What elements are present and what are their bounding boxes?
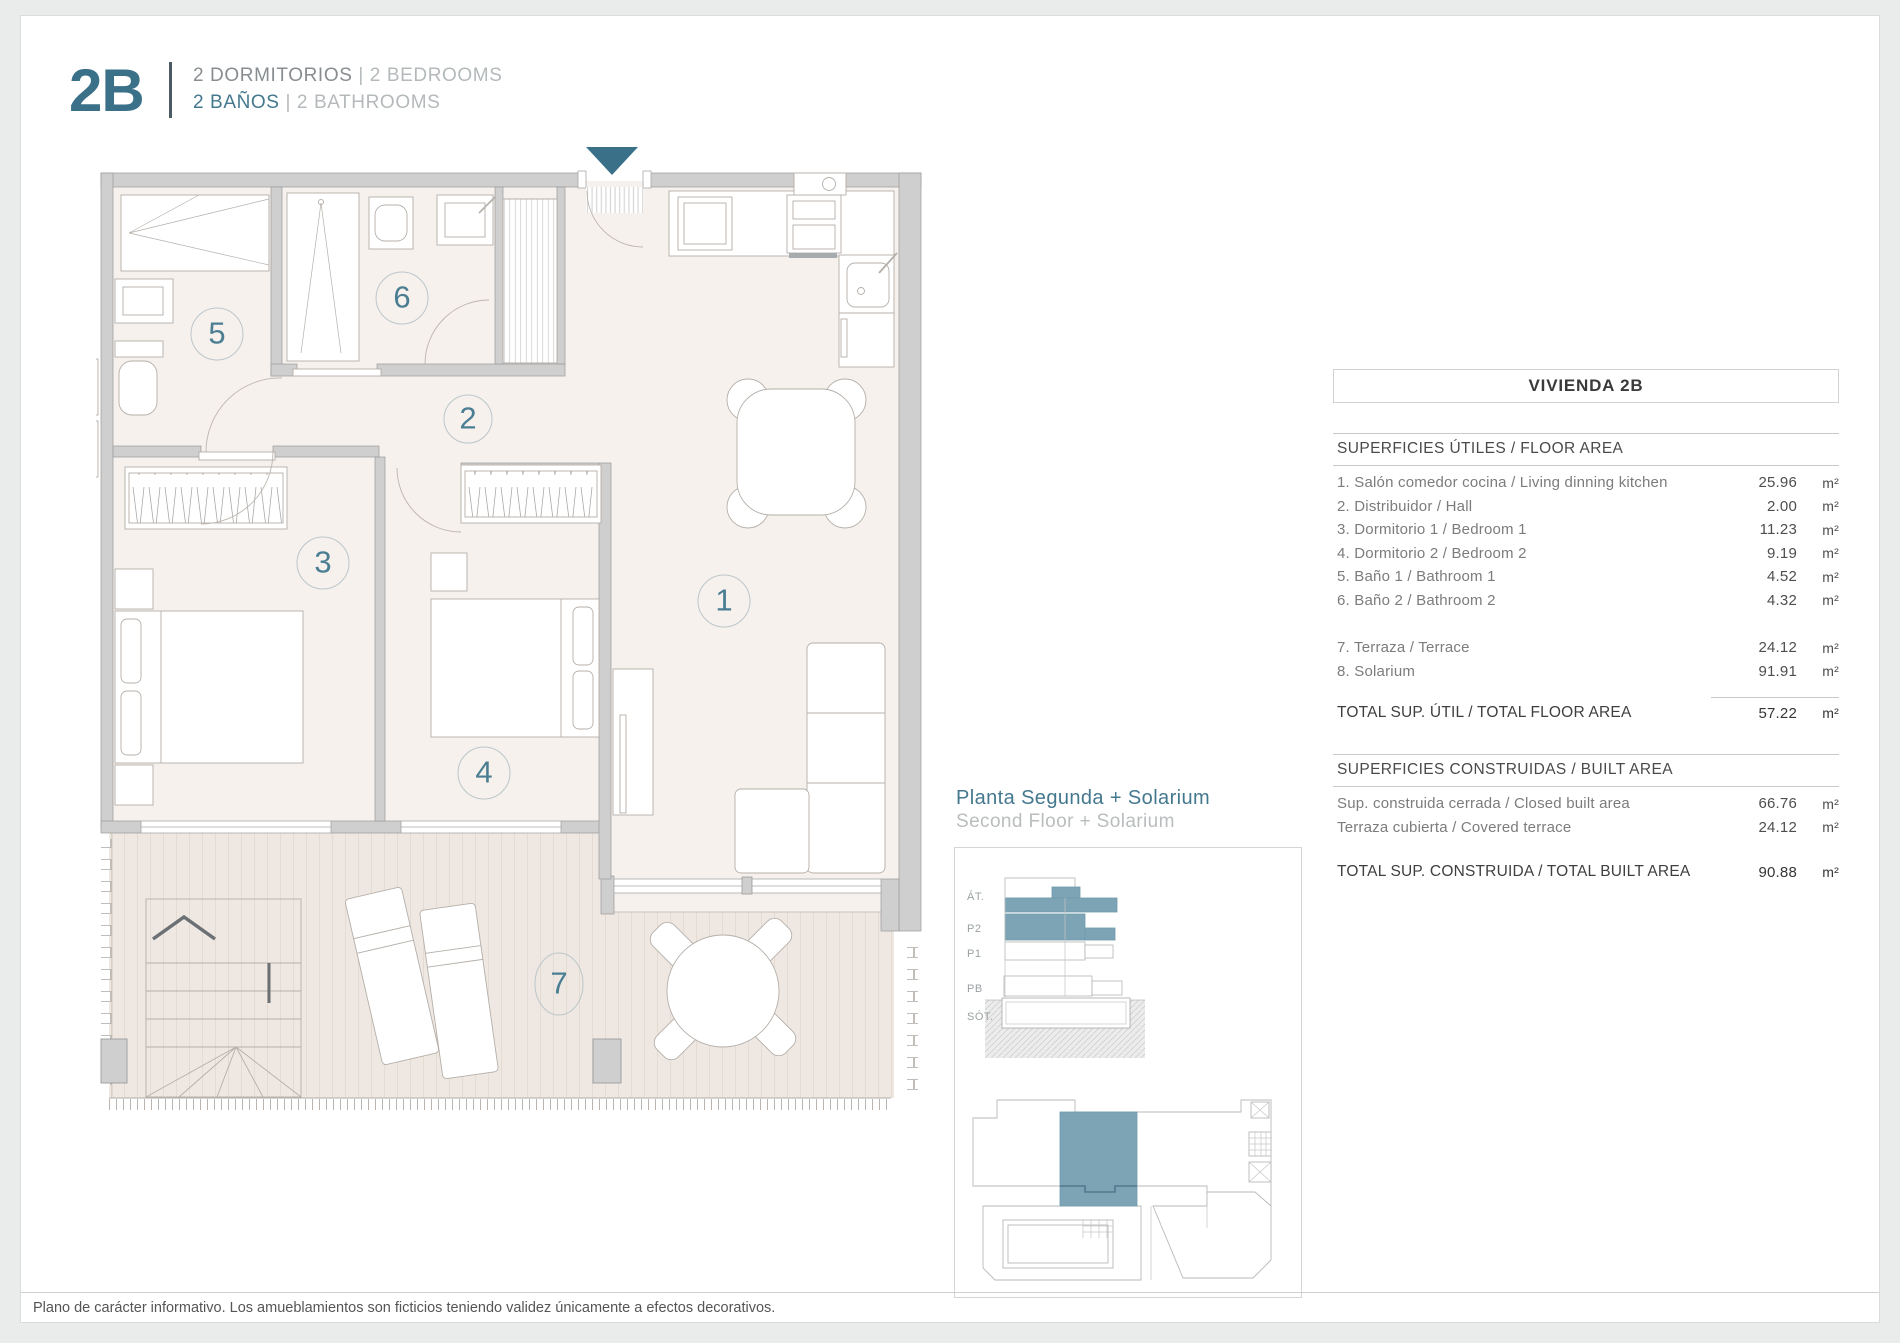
entrance-arrow-icon: [586, 147, 638, 175]
row-value: 4.52: [1733, 568, 1797, 585]
entry-closet: [503, 199, 557, 363]
floor-area-header: SUPERFICIES ÚTILES / FLOOR AREA: [1333, 433, 1839, 466]
row-unit: m²: [1797, 663, 1839, 679]
disclaimer-text: Plano de carácter informativo. Los amueb…: [33, 1300, 775, 1316]
sliding-door: [293, 369, 381, 376]
row-label: 4. Dormitorio 2 / Bedroom 2: [1333, 545, 1733, 562]
header-sep2: |: [285, 92, 291, 113]
bathrooms-en-label: 2 BATHROOMS: [297, 92, 441, 113]
bathrooms-es-label: 2 BAÑOS: [193, 92, 280, 113]
row-unit: m²: [1797, 705, 1839, 721]
header-divider: [169, 62, 172, 118]
floor-label-p1: P1: [967, 948, 1007, 960]
pillar: [101, 1039, 127, 1083]
room-label-living: 1: [715, 582, 732, 618]
table-row: 3. Dormitorio 1 / Bedroom 111.23m²: [1333, 518, 1839, 542]
row-unit: m²: [1797, 640, 1839, 656]
total-built-area-row: TOTAL SUP. CONSTRUIDA / TOTAL BUILT AREA…: [1333, 857, 1839, 887]
row-unit: m²: [1797, 819, 1839, 835]
sliding-door: [199, 452, 275, 460]
legend-box: ÁT. P2 P1 PB SÓT.: [954, 847, 1302, 1298]
row-unit: m²: [1797, 498, 1839, 514]
footer-bar: Plano de carácter informativo. Los amueb…: [21, 1292, 1879, 1322]
room-label-bedroom1: 3: [314, 544, 331, 580]
row-label: Sup. construida cerrada / Closed built a…: [1333, 795, 1733, 812]
table-title: VIVIENDA 2B: [1333, 369, 1839, 403]
row-label: 3. Dormitorio 1 / Bedroom 1: [1333, 521, 1733, 538]
row-label: TOTAL SUP. CONSTRUIDA / TOTAL BUILT AREA: [1333, 863, 1733, 881]
row-value: 11.23: [1733, 521, 1797, 538]
table-row: Terraza cubierta / Covered terrace24.12m…: [1333, 816, 1839, 840]
header-subtitle: 2 DORMITORIOS | 2 BEDROOMS 2 BAÑOS | 2 B…: [193, 62, 503, 116]
table-row: 6. Baño 2 / Bathroom 24.32m²: [1333, 589, 1839, 613]
row-unit: m²: [1797, 522, 1839, 538]
sheet-background: 2B 2 DORMITORIOS | 2 BEDROOMS 2 BAÑOS | …: [0, 0, 1900, 1343]
header-bedrooms-line: 2 DORMITORIOS | 2 BEDROOMS: [193, 62, 503, 89]
room-label-bedroom2: 4: [475, 754, 492, 790]
bedroom1-furniture: [115, 467, 303, 805]
row-label: 5. Baño 1 / Bathroom 1: [1333, 568, 1733, 585]
area-table: VIVIENDA 2B SUPERFICIES ÚTILES / FLOOR A…: [1333, 369, 1839, 887]
row-value: 24.12: [1733, 639, 1797, 656]
row-value: 2.00: [1733, 498, 1797, 515]
tv-unit: [613, 669, 653, 815]
entrance: [586, 147, 643, 213]
row-value: 24.12: [1733, 819, 1797, 836]
table-row: 5. Baño 1 / Bathroom 14.52m²: [1333, 565, 1839, 589]
header-sep1: |: [358, 65, 364, 86]
unit-code-title: 2B: [69, 56, 144, 125]
table-row: 1. Salón comedor cocina / Living dinning…: [1333, 471, 1839, 495]
bedrooms-es-label: 2 DORMITORIOS: [193, 65, 352, 86]
ground: [985, 998, 1145, 1058]
bedrooms-en-label: 2 BEDROOMS: [370, 65, 503, 86]
row-value: 91.91: [1733, 663, 1797, 680]
row-unit: m²: [1797, 475, 1839, 491]
terrace-table-set: [646, 914, 800, 1064]
table-row: 8. Solarium91.91m²: [1333, 660, 1839, 684]
row-unit: m²: [1797, 592, 1839, 608]
table-row: Sup. construida cerrada / Closed built a…: [1333, 792, 1839, 816]
row-value: 66.76: [1733, 795, 1797, 812]
floor-area-rows: 1. Salón comedor cocina / Living dinning…: [1333, 466, 1839, 683]
table-row: 7. Terraza / Terrace24.12m²: [1333, 636, 1839, 660]
total-floor-area-row: TOTAL SUP. ÚTIL / TOTAL FLOOR AREA57.22m…: [1333, 698, 1839, 728]
key-plan-diagram: [955, 1088, 1301, 1297]
row-label: 6. Baño 2 / Bathroom 2: [1333, 592, 1733, 609]
floor-label-p2: P2: [967, 923, 1007, 935]
row-value: 4.32: [1733, 592, 1797, 609]
plan-sheet-page: 2B 2 DORMITORIOS | 2 BEDROOMS 2 BAÑOS | …: [20, 15, 1880, 1323]
row-value: 9.19: [1733, 545, 1797, 562]
legend-title-es: Planta Segunda + Solarium: [956, 787, 1210, 810]
room-label-terrace: 7: [550, 965, 567, 1001]
row-label: 2. Distribuidor / Hall: [1333, 498, 1733, 515]
built-area-rows: Sup. construida cerrada / Closed built a…: [1333, 787, 1839, 839]
header-bathrooms-line: 2 BAÑOS | 2 BATHROOMS: [193, 89, 503, 116]
ac-units: [96, 359, 98, 477]
floor-label-atico: ÁT.: [967, 891, 1007, 903]
row-label: 8. Solarium: [1333, 663, 1733, 680]
table-row: 4. Dormitorio 2 / Bedroom 29.19m²: [1333, 542, 1839, 566]
room-label-bathroom2: 6: [393, 279, 410, 315]
row-value: 25.96: [1733, 474, 1797, 491]
row-label: Terraza cubierta / Covered terrace: [1333, 819, 1733, 836]
dining-table: [727, 379, 866, 528]
floor-plan-drawing: [96, 141, 941, 1121]
table-row: 2. Distribuidor / Hall2.00m²: [1333, 495, 1839, 519]
room-label-bathroom1: 5: [208, 315, 225, 351]
row-label: 1. Salón comedor cocina / Living dinning…: [1333, 474, 1733, 491]
room-label-hall: 2: [459, 400, 476, 436]
highlighted-unit: [1060, 1112, 1137, 1206]
floor-label-sotano: SÓT.: [967, 1011, 1007, 1023]
row-unit: m²: [1797, 864, 1839, 880]
row-unit: m²: [1797, 569, 1839, 585]
legend-title-en: Second Floor + Solarium: [956, 811, 1175, 833]
built-area-header: SUPERFICIES CONSTRUIDAS / BUILT AREA: [1333, 754, 1839, 787]
floor-label-pb: PB: [967, 983, 1007, 995]
row-label: TOTAL SUP. ÚTIL / TOTAL FLOOR AREA: [1333, 704, 1733, 722]
building-section-diagram: [955, 848, 1301, 1088]
floor-plan: 1 2 3 4 5 6 7: [96, 141, 941, 1121]
row-value: 90.88: [1733, 864, 1797, 881]
row-value: 57.22: [1733, 705, 1797, 722]
row-unit: m²: [1797, 545, 1839, 561]
pillar: [593, 1039, 621, 1083]
row-unit: m²: [1797, 796, 1839, 812]
row-label: 7. Terraza / Terrace: [1333, 639, 1733, 656]
